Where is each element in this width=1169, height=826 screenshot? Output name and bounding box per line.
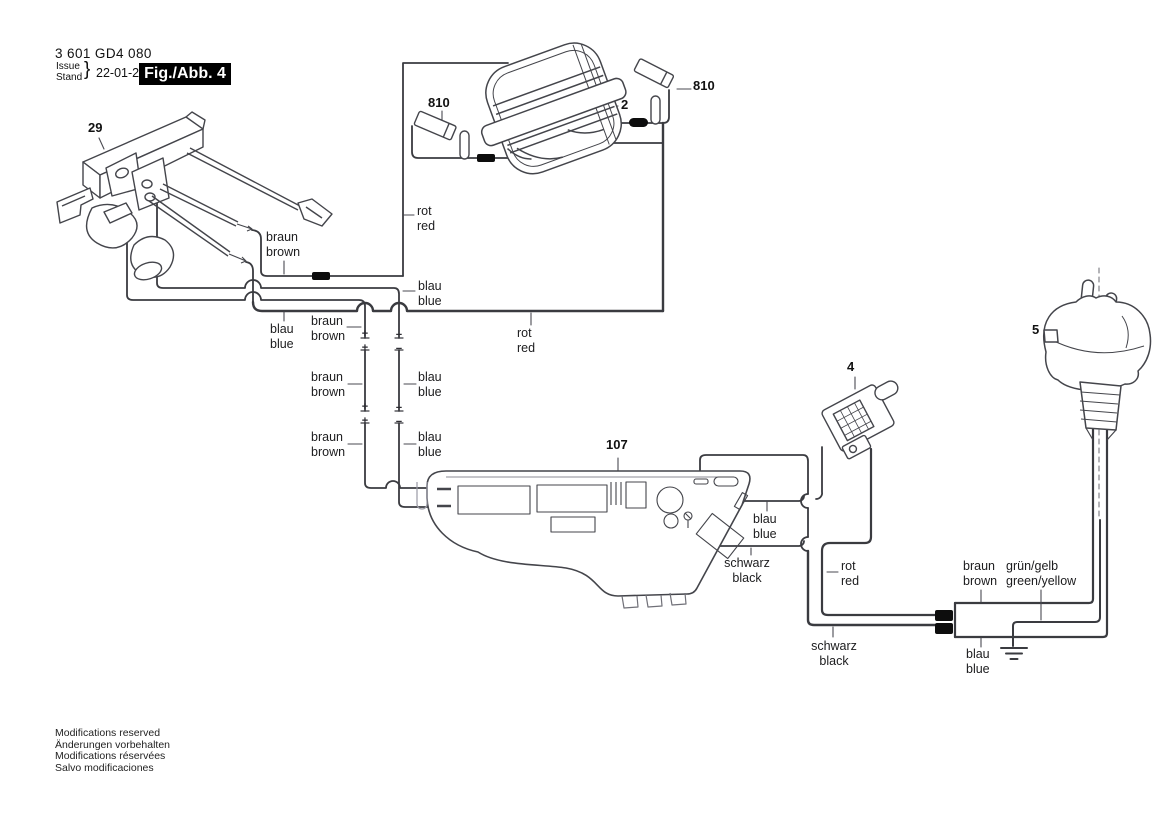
wire-label-rot-red-1: rotred <box>417 204 435 234</box>
plus-mark-4: + <box>359 415 371 427</box>
wire-blau-rot-main <box>253 302 663 311</box>
part-label-plug: 5 <box>1032 322 1039 337</box>
wire-label-braun-1: braunbrown <box>266 230 300 260</box>
wire-blau-cord <box>955 427 1107 637</box>
footer-line: Modifications réservées <box>55 751 170 763</box>
wire-label-blau-5: blaublue <box>753 512 777 542</box>
wire-label-blau-1: blaublue <box>418 279 442 309</box>
wire-label-rot-red-3: rotred <box>841 559 859 589</box>
part-label-switch: 29 <box>88 120 102 135</box>
plus-mark-2: + <box>359 342 371 354</box>
part-label-module: 107 <box>606 437 628 452</box>
minus-mark-2: − <box>393 343 405 355</box>
figure-label: Fig./Abb. 4 <box>139 63 231 85</box>
wiring-diagram-drawing <box>0 0 1169 826</box>
wire-label-braun-3: braunbrown <box>311 370 345 400</box>
part-number: 3 601 GD4 080 <box>55 46 152 61</box>
wire-label-schwarz-1: schwarzblack <box>714 556 780 586</box>
plug-5 <box>1044 280 1151 440</box>
wire-label-braun-4: braunbrown <box>311 430 345 460</box>
wire-label-blau-6: blaublue <box>966 647 990 677</box>
wiring-diagram-page: 3 601 GD4 080 IssueStand } 22-01-26 Fig.… <box>0 0 1169 826</box>
wire-label-blau-2: blaublue <box>270 322 294 352</box>
wire-connector4-a <box>816 447 822 499</box>
wire-label-blau-3: blaublue <box>418 370 442 400</box>
wire-label-rot-red-2: rotred <box>517 326 535 356</box>
issue-stand-label: IssueStand <box>56 61 82 83</box>
wire-blau-upper <box>157 194 399 338</box>
part-label-brush-left: 810 <box>428 95 450 110</box>
wire-label-braun-2: braunbrown <box>311 314 345 344</box>
wire-label-gruen-gelb: grün/gelbgreen/yellow <box>1006 559 1076 589</box>
brush-right-810 <box>634 58 674 124</box>
wire-connector4-b <box>822 449 935 615</box>
minus-mark-3: − <box>393 402 405 414</box>
footer-line: Modifications reserved <box>55 728 170 740</box>
part-label-brush-right: 810 <box>693 78 715 93</box>
wire-label-blau-4: blaublue <box>418 430 442 460</box>
footer-line: Salvo modificaciones <box>55 763 170 775</box>
connector-4 <box>821 374 917 460</box>
field-stator-2 <box>463 30 642 187</box>
wire-schwarz-hop2 <box>801 537 808 551</box>
footer-modifications: Modifications reserved Änderungen vorbeh… <box>55 728 170 774</box>
wire-label-braun-5: braunbrown <box>963 559 997 589</box>
plus-mark-3: + <box>359 401 371 413</box>
module-107 <box>417 471 750 608</box>
minus-mark-4: − <box>393 416 405 428</box>
part-label-field: 2 <box>621 97 628 112</box>
part-label-connector: 4 <box>847 359 854 374</box>
ground-symbol <box>1001 648 1027 659</box>
plus-mark-1: + <box>359 328 371 340</box>
minus-mark-1: − <box>393 329 405 341</box>
wire-blau-module-out <box>742 496 804 501</box>
issue-stand-brace: } <box>84 59 90 81</box>
wire-label-schwarz-2: schwarzblack <box>801 639 867 669</box>
brush-left-810 <box>414 111 469 159</box>
